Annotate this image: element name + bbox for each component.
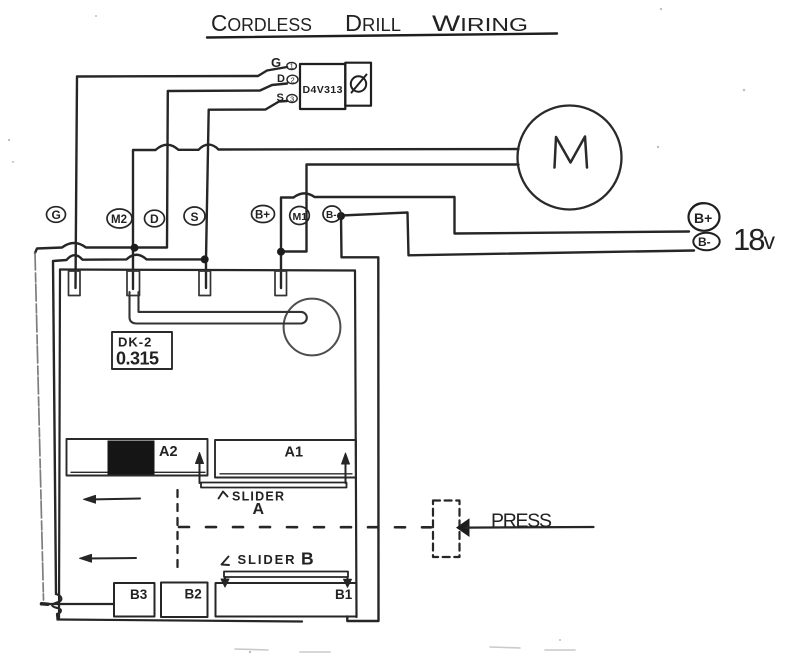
svg-text:B-: B- (326, 210, 337, 221)
svg-text:B: B (301, 549, 314, 569)
svg-text:M1: M1 (293, 211, 308, 223)
svg-text:2: 2 (291, 75, 295, 84)
svg-text:A2: A2 (159, 444, 178, 460)
svg-text:S: S (191, 210, 199, 224)
svg-text:M2: M2 (111, 214, 127, 226)
svg-text:B1: B1 (335, 587, 353, 602)
svg-text:18v: 18v (733, 222, 775, 257)
svg-text:0.315: 0.315 (116, 349, 159, 369)
svg-text:CORDLESS: CORDLESS (211, 10, 312, 36)
svg-text:PRESS: PRESS (491, 510, 553, 532)
svg-text:SLIDER: SLIDER (238, 552, 296, 567)
svg-text:DRILL: DRILL (345, 10, 401, 36)
svg-text:G: G (52, 208, 61, 222)
svg-text:B2: B2 (185, 587, 202, 602)
svg-text:WIRING: WIRING (432, 11, 528, 36)
svg-text:B+: B+ (694, 210, 712, 226)
svg-text:B3: B3 (130, 587, 148, 602)
svg-text:B-: B- (698, 235, 711, 249)
svg-text:1: 1 (290, 64, 294, 71)
svg-text:G: G (271, 55, 281, 70)
svg-text:S: S (277, 92, 284, 104)
svg-text:DK-2: DK-2 (118, 335, 152, 350)
svg-text:3: 3 (290, 94, 294, 103)
svg-text:B+: B+ (255, 210, 270, 222)
svg-text:D: D (150, 212, 159, 226)
svg-text:A1: A1 (285, 445, 304, 461)
svg-text:D4V313: D4V313 (303, 84, 343, 96)
svg-text:D: D (277, 73, 285, 85)
svg-text:A: A (253, 501, 265, 518)
